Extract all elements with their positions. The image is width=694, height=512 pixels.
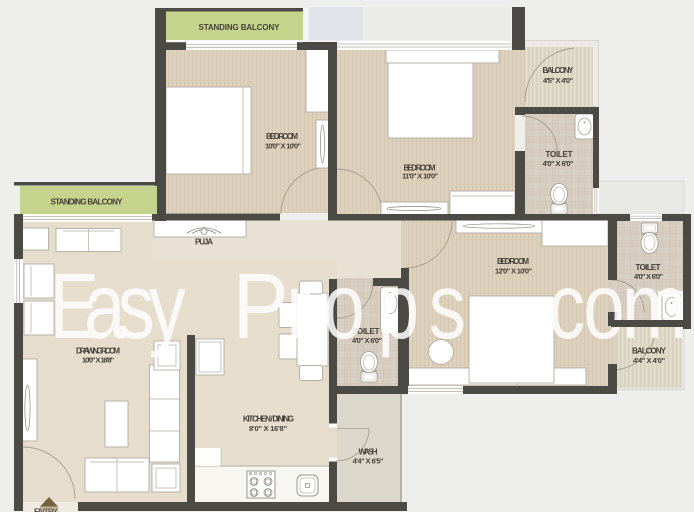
svg-text:STANDING BALCONY: STANDING BALCONY — [199, 23, 281, 32]
svg-text:WASH: WASH — [359, 448, 378, 457]
svg-text:8'0" X 16'8": 8'0" X 16'8" — [249, 424, 287, 433]
svg-text:4'5" X 4'0": 4'5" X 4'0" — [543, 76, 573, 85]
svg-text:4'4" X 6'5": 4'4" X 6'5" — [353, 457, 384, 466]
svg-text:BED ROOM: BED ROOM — [266, 132, 298, 141]
svg-text:PUJA: PUJA — [195, 238, 213, 247]
svg-text:TOILET: TOILET — [546, 150, 573, 159]
svg-text:BED ROOM: BED ROOM — [497, 257, 529, 266]
svg-text:4'0" X 6'0": 4'0" X 6'0" — [543, 159, 574, 168]
svg-text:10'0" X 10'0": 10'0" X 10'0" — [265, 142, 301, 151]
svg-text:BALCONY: BALCONY — [543, 66, 575, 75]
svg-text:KITCHEN / DINING: KITCHEN / DINING — [243, 415, 294, 424]
svg-text:12'0" X 10'0": 12'0" X 10'0" — [495, 267, 532, 276]
svg-text:11'0" X 10'0": 11'0" X 10'0" — [402, 172, 438, 181]
svg-text:STANDING BALCONY: STANDING BALCONY — [51, 198, 124, 207]
